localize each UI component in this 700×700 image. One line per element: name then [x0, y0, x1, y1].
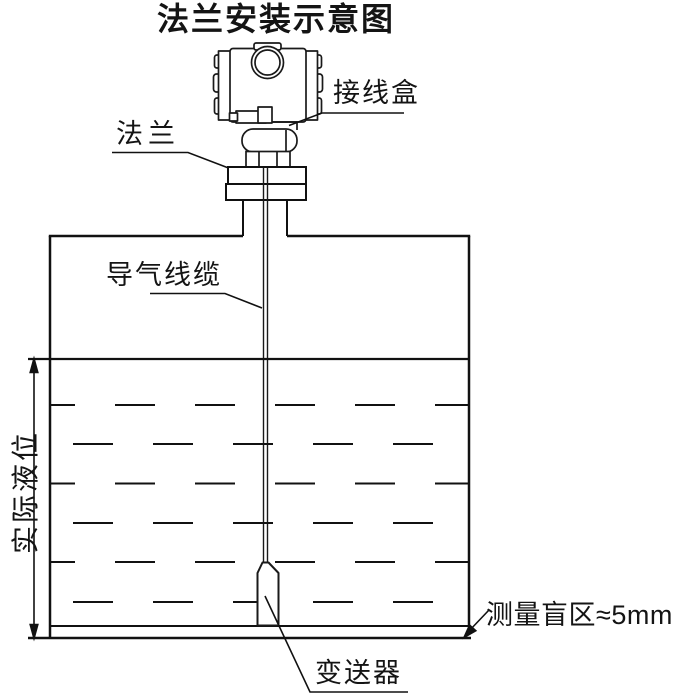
- conduit-block: [258, 107, 272, 123]
- junction-box-label: 接线盒: [333, 79, 420, 107]
- flange-plates: [226, 167, 306, 200]
- hex-nut: [246, 152, 290, 169]
- dome-inner-ring: [255, 50, 280, 75]
- probe-body: [258, 563, 279, 626]
- diagram-title: 法兰安装示意图: [157, 3, 395, 37]
- connection-fitting: [242, 129, 297, 152]
- air-cable-label: 导气线缆: [106, 261, 222, 289]
- blind-zone-label: 测量盲区≈5mm: [486, 601, 673, 629]
- mounting-nozzle: [243, 200, 287, 236]
- guide-cable-line: [264, 168, 268, 564]
- left-rib-fins: [214, 51, 232, 120]
- conduit-tab: [230, 113, 238, 121]
- transmitter-label: 变送器: [315, 659, 402, 687]
- actual-level-label: 实际液位: [4, 430, 44, 554]
- transmitter-head: [214, 43, 323, 130]
- diagram-canvas: 法兰安装示意图 接线盒 法兰 导气线缆 实际液位 测量盲区≈5mm 变送器: [0, 0, 700, 700]
- right-rib-fins: [305, 51, 323, 120]
- flange-label: 法兰: [116, 120, 180, 148]
- tank: [28, 236, 471, 639]
- flange-leader: [112, 153, 229, 169]
- air-cable-leader: [150, 294, 262, 309]
